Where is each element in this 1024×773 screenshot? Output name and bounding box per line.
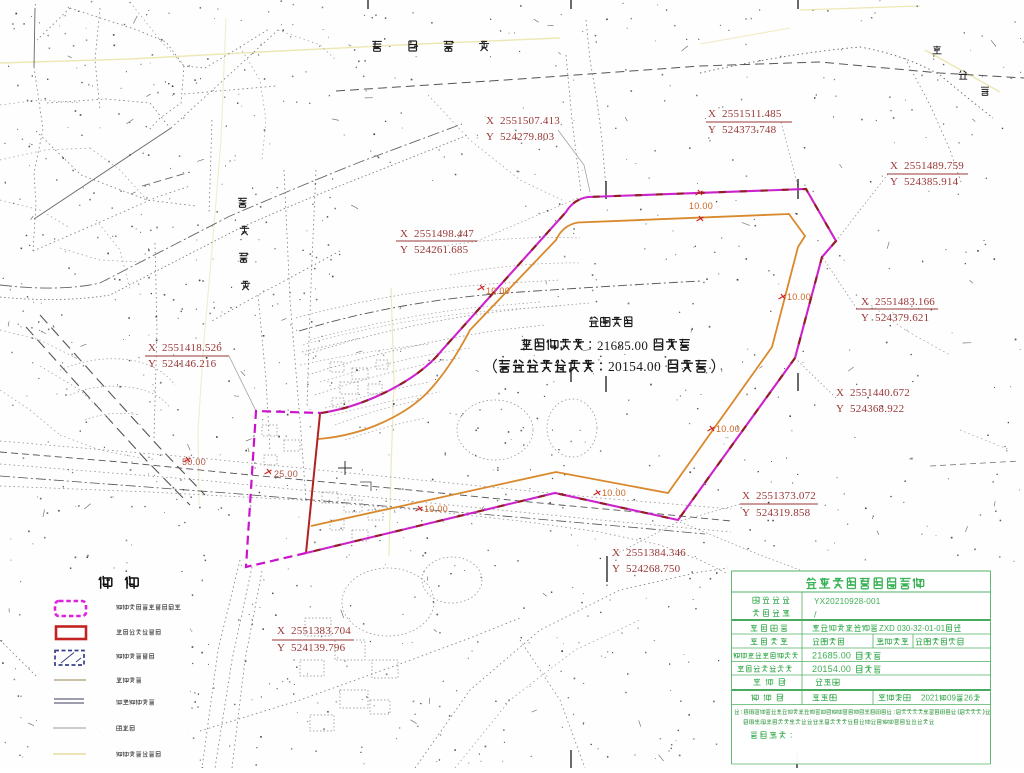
svg-text:26: 26 — [964, 694, 973, 703]
svg-text:X 2551489.759: X 2551489.759 — [890, 160, 964, 172]
svg-text:10.00: 10.00 — [424, 504, 448, 514]
svg-text:X 2551384.346: X 2551384.346 — [612, 547, 686, 559]
svg-text:ZXD 030-32-01-01: ZXD 030-32-01-01 — [879, 624, 945, 633]
svg-text:Y 524385.914: Y 524385.914 — [890, 176, 959, 188]
svg-text:X 2551511.485: X 2551511.485 — [708, 108, 782, 120]
svg-text:Y 524368.922: Y 524368.922 — [836, 403, 904, 415]
svg-text:21685.00: 21685.00 — [812, 651, 851, 661]
svg-text:X 2551418.526: X 2551418.526 — [148, 342, 222, 354]
svg-text:Y 524373.748: Y 524373.748 — [708, 124, 777, 136]
svg-text:YX20210928-001: YX20210928-001 — [814, 597, 881, 606]
svg-text:2021: 2021 — [921, 694, 939, 703]
svg-text:20154.00: 20154.00 — [608, 359, 661, 374]
svg-text:10.00: 10.00 — [602, 488, 626, 498]
svg-text:10.00: 10.00 — [689, 201, 713, 211]
svg-text:X 2551483.166: X 2551483.166 — [861, 296, 935, 308]
svg-text:X 2551498.447: X 2551498.447 — [400, 228, 474, 240]
svg-text:Y 524379.621: Y 524379.621 — [861, 312, 929, 324]
svg-text:X 2551440.672: X 2551440.672 — [836, 387, 910, 399]
svg-text:09: 09 — [947, 694, 956, 703]
svg-text:Y 524146.216: Y 524146.216 — [148, 358, 217, 370]
svg-text:X 2551373.072: X 2551373.072 — [742, 490, 816, 502]
svg-text:20154.00: 20154.00 — [812, 664, 851, 674]
svg-text:10.00: 10.00 — [787, 292, 811, 302]
svg-text:10.00: 10.00 — [486, 286, 510, 296]
svg-text:21685.00: 21685.00 — [597, 338, 648, 353]
svg-text:Y 524268.750: Y 524268.750 — [612, 563, 681, 575]
svg-text:10.00: 10.00 — [716, 424, 740, 434]
svg-text:Y 524139.796: Y 524139.796 — [277, 642, 346, 654]
svg-text:X 2551383.704: X 2551383.704 — [277, 625, 351, 637]
svg-text:Y 524279.803: Y 524279.803 — [486, 131, 555, 143]
svg-text:Y 524261.685: Y 524261.685 — [400, 244, 469, 256]
svg-text:50.00: 50.00 — [182, 457, 206, 467]
svg-text:25.00: 25.00 — [274, 469, 298, 479]
svg-text:X 2551507.413: X 2551507.413 — [486, 115, 560, 127]
svg-text:Y 524319.858: Y 524319.858 — [742, 507, 811, 519]
